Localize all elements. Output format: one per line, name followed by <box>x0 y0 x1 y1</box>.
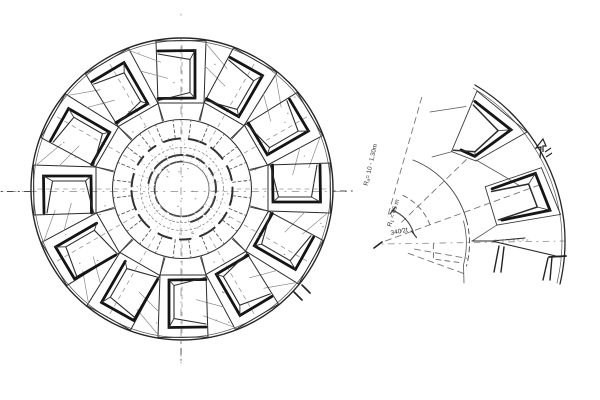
svg-text:Ra= 10 - 1,30m: Ra= 10 - 1,30m <box>363 143 379 186</box>
svg-text:340∕2t: 340∕2t <box>390 227 409 237</box>
